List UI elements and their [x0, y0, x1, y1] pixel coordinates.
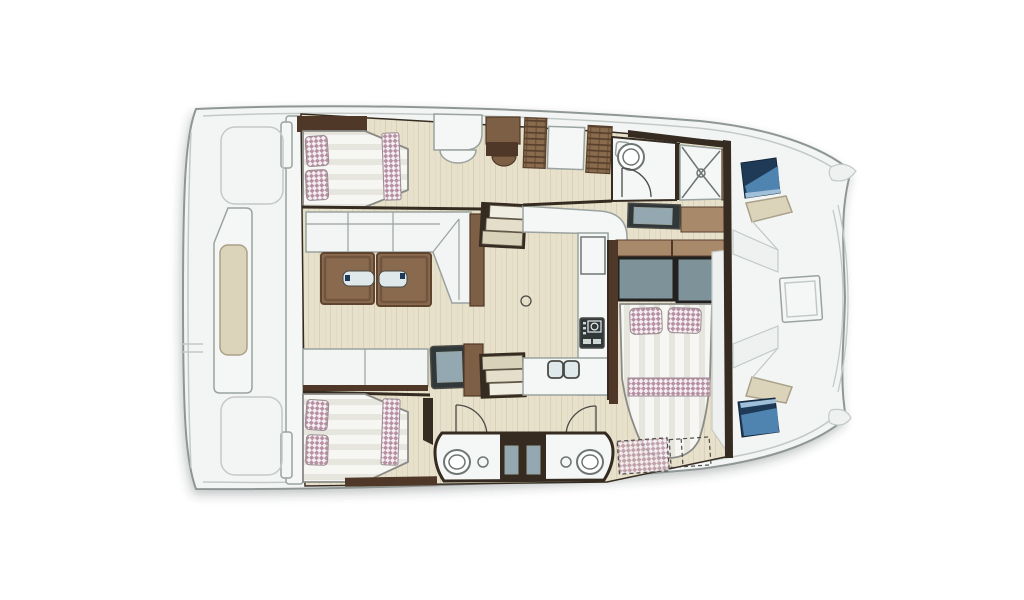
- stair-tread: [482, 231, 523, 246]
- stair-tread: [489, 382, 523, 395]
- wardrobe-wicker: [586, 125, 612, 173]
- pillow: [305, 399, 329, 430]
- oven-door: [583, 339, 591, 344]
- sink-basin: [548, 361, 563, 378]
- bed-runner: [628, 378, 710, 396]
- bed-runner: [381, 399, 400, 466]
- wardrobe-white: [547, 126, 584, 169]
- salon-port-wall: [302, 207, 483, 209]
- port-bathroom: [612, 130, 729, 201]
- salon-bench-group: [303, 344, 483, 396]
- toilet-icon: [618, 144, 644, 170]
- wood-counter: [681, 207, 727, 232]
- bow-tip-port: [829, 164, 856, 181]
- cabinet: [486, 117, 520, 144]
- starboard-bathrooms: [435, 433, 613, 481]
- corridor-wall-corner: [423, 398, 433, 445]
- pillow: [668, 307, 702, 333]
- optional-berth-checker: [617, 438, 669, 474]
- side-table-top: [436, 352, 462, 383]
- stair-tread: [482, 355, 522, 369]
- bench-back-trim: [303, 385, 428, 391]
- bed-foot-trim: [345, 476, 437, 487]
- stair-tread: [489, 205, 524, 219]
- pillow: [305, 169, 329, 200]
- bed-runner: [382, 133, 401, 201]
- foredeck-sunpad: [780, 276, 823, 323]
- vanity-sink: [634, 207, 673, 224]
- vanity-desk: [434, 114, 482, 150]
- companionway-stairs-port: [479, 202, 527, 249]
- wardrobe-wicker: [523, 118, 547, 169]
- forward-vanity: [628, 203, 727, 232]
- foredeck-hatch-port: [741, 158, 780, 198]
- sink-basin: [564, 361, 579, 378]
- bow-tip-starboard: [829, 409, 851, 425]
- stove-knob: [583, 327, 586, 329]
- stair-tread: [486, 218, 524, 232]
- shower-column: [527, 446, 540, 474]
- catamaran-floor-plan: [0, 0, 1024, 600]
- pillow: [630, 307, 663, 334]
- companionway-stairs-starboard: [479, 352, 527, 399]
- aft-bench-cushion: [220, 245, 247, 355]
- floor-plan-canvas: [0, 0, 1024, 600]
- table-latch: [400, 273, 405, 279]
- bed-headboard-wall: [297, 116, 367, 132]
- galley-double-sink: [548, 361, 579, 378]
- shower-column: [505, 446, 518, 474]
- headboard-slate-panel: [618, 258, 674, 300]
- cabinet-dark: [486, 142, 518, 156]
- cabin-side-wall: [609, 240, 618, 404]
- galley-stove: [580, 318, 604, 348]
- toilet-icon: [577, 450, 603, 474]
- table-latch: [345, 275, 350, 281]
- stove-knob: [583, 322, 586, 324]
- salon-folding-table: [321, 253, 431, 306]
- stair-tread: [486, 369, 523, 382]
- oven-door: [593, 339, 601, 344]
- transom-wall: [286, 116, 303, 484]
- pillow: [305, 435, 328, 466]
- stove-knob: [583, 332, 586, 334]
- pillow: [305, 135, 329, 166]
- toilet-icon: [444, 450, 470, 474]
- foredeck-hatch-starboard: [738, 398, 779, 437]
